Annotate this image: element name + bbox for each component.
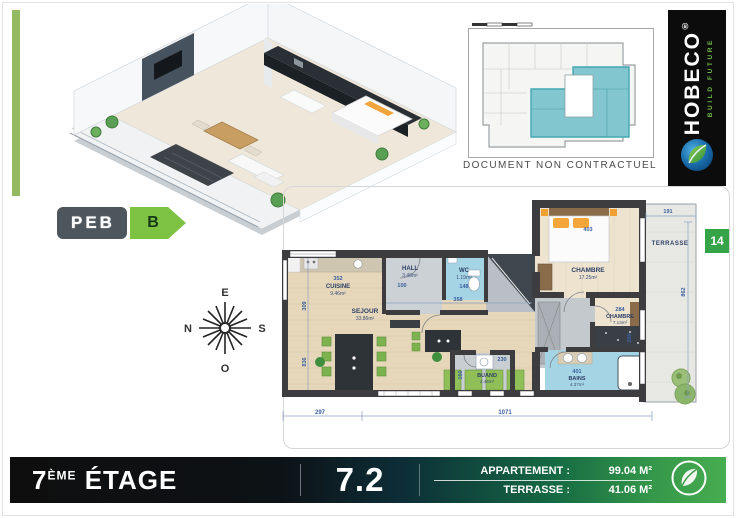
area-bains: 4.37m² [570,382,585,387]
dim-chambre2: 284 [615,307,625,313]
dim-chambre1: 403 [583,227,592,233]
hobeco-banner: HOBECO® BUILD FUTURE [668,10,726,186]
dim-bottom-right: 1071 [498,410,512,416]
dim-hall: 100 [397,283,406,289]
area-buand: 2.46m² [480,379,495,384]
dim-hall-bottom: 358 [453,297,462,303]
dim-bottom-left: 297 [315,410,326,416]
terrace-area-row: TERRASSE : 41.06 M² [434,481,652,499]
area-chambre1: 17.25m² [579,275,598,281]
hobeco-globe-logo [679,137,715,178]
footer-divider-2 [419,464,420,496]
scale-bar [470,16,540,24]
area-wc: 1.19m² [456,275,472,281]
peb-energy-label: PEB B [57,207,186,239]
area-sejour: 33.86m² [356,316,375,322]
label-cuisine: CUISINE [326,284,350,290]
terrace-label: TERRASSE : [460,484,570,496]
label-terrasse: TERRASSE [652,241,689,247]
label-wc: WC [459,268,470,274]
hobeco-tagline: BUILD FUTURE [707,38,714,117]
footer-leaf-logo [670,459,708,502]
hobeco-name: HOBECO® [680,19,705,135]
dim-terrace-right: 862 [681,287,687,296]
dim-cuisine: 352 [333,276,342,282]
peb-grade-arrow: B [130,207,186,239]
compass-rose: E S O N [180,282,270,374]
compass-top-label: E [221,287,228,299]
floor-title: 7ÈME ÉTAGE [32,465,177,496]
dim-left-lower: 836 [302,357,308,366]
dim-buand-top: 230 [497,357,506,363]
area-summary: APPARTEMENT : 99.04 M² TERRASSE : 41.06 … [434,462,652,499]
dim-buand-left: 150 [458,370,464,379]
unit-number-badge: 14 [705,229,729,253]
terrace-value: 41.06 M² [588,484,652,496]
compass-left-label: N [184,323,192,335]
dim-left-upper: 309 [302,301,308,310]
floor-plan-2d: 297 1071 191 862 309 836 358 230 280 150… [262,192,698,432]
area-cuisine: 9.46m² [330,291,346,297]
unit-number: 7.2 [301,461,419,499]
dim-bains: 401 [572,369,581,375]
dim-chambre2-right: 280 [627,333,633,342]
area-chambre2: 7.13m² [613,320,628,325]
apartment-value: 99.04 M² [588,465,652,477]
dim-terrace-top: 191 [663,209,672,215]
peb-label: PEB [57,207,127,239]
overview-plan-box [468,28,654,158]
label-chambre1: CHAMBRE [571,267,605,274]
overview-caption: DOCUMENT NON CONTRACTUEL [455,160,665,171]
area-hall: 3.48m² [402,273,418,279]
apartment-area-row: APPARTEMENT : 99.04 M² [434,462,652,481]
compass-bottom-label: O [221,363,230,374]
green-accent-stripe [12,10,20,196]
footer-bar: 7ÈME ÉTAGE 7.2 APPARTEMENT : 99.04 M² TE… [10,457,726,503]
apartment-label: APPARTEMENT : [460,465,570,477]
hobeco-wordmark: HOBECO® BUILD FUTURE [680,10,714,137]
label-hall: HALL [402,266,418,272]
label-sejour: SEJOUR [352,308,379,315]
dim-wc: 148 [459,284,468,290]
